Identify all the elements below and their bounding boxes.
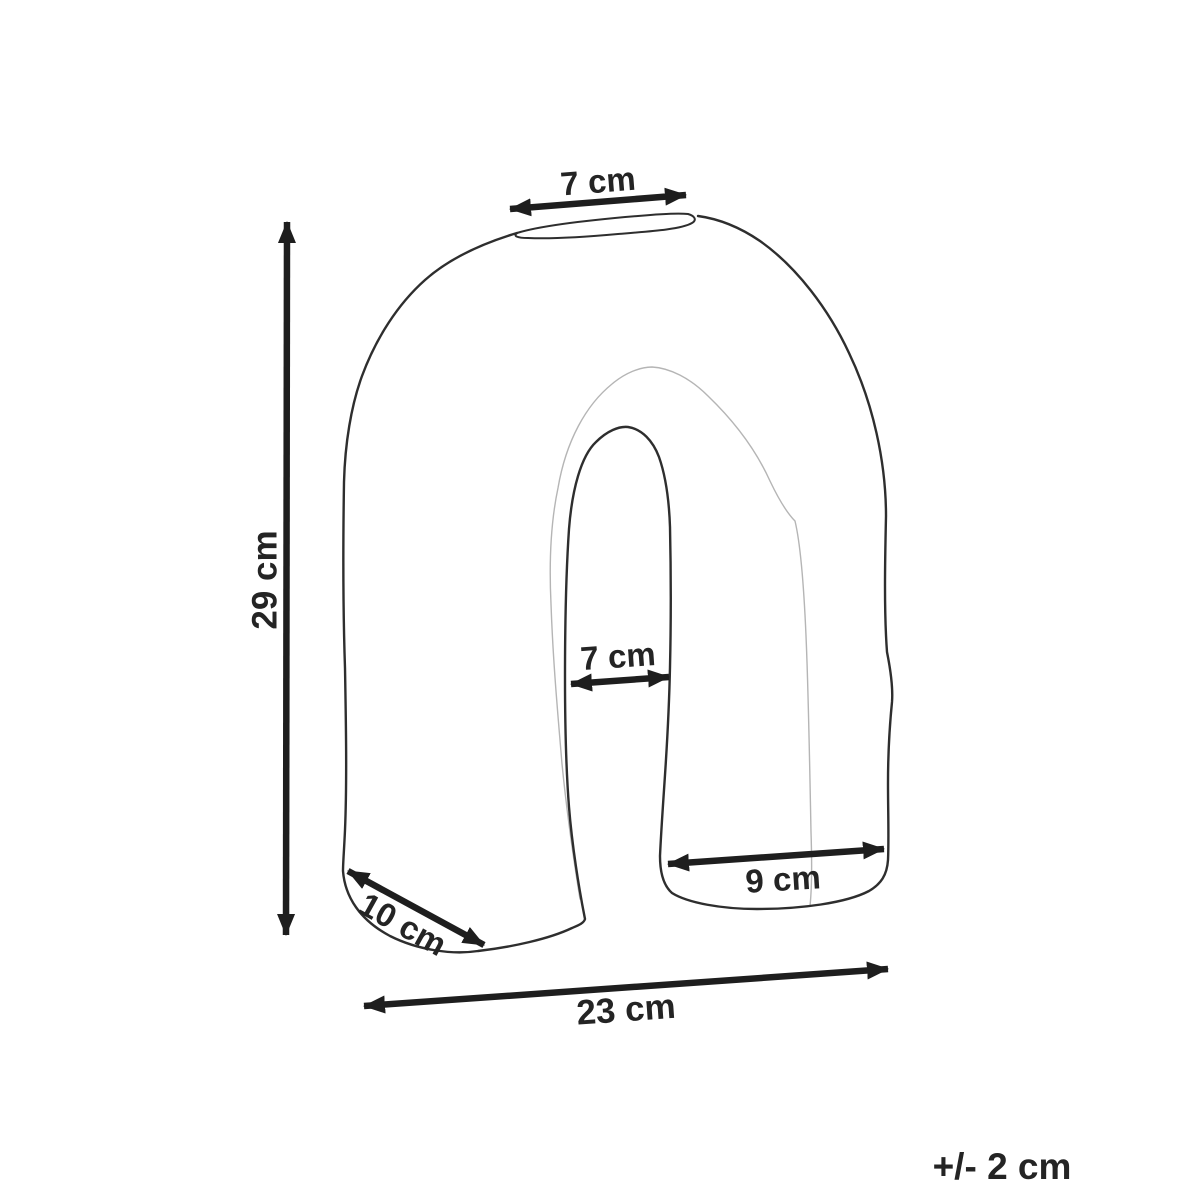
dim-overall-height-arrow [286,222,287,935]
dim-top-opening-width-label: 7 cm [559,160,637,203]
dim-right-base-width-label: 9 cm [744,858,821,900]
tolerance-note: +/- 2 cm [933,1146,1072,1187]
dimension-diagram: 7 cm 29 cm 7 cm 9 cm 10 cm 23 cm +/- 2 c [0,0,1200,1200]
dimension-diagram-canvas: 7 cm 29 cm 7 cm 9 cm 10 cm 23 cm +/- 2 c [0,0,1200,1200]
dim-inner-arch-width-label: 7 cm [579,635,657,677]
dim-overall-height-label: 29 cm [245,530,284,629]
dim-overall-width-label: 23 cm [575,987,677,1033]
